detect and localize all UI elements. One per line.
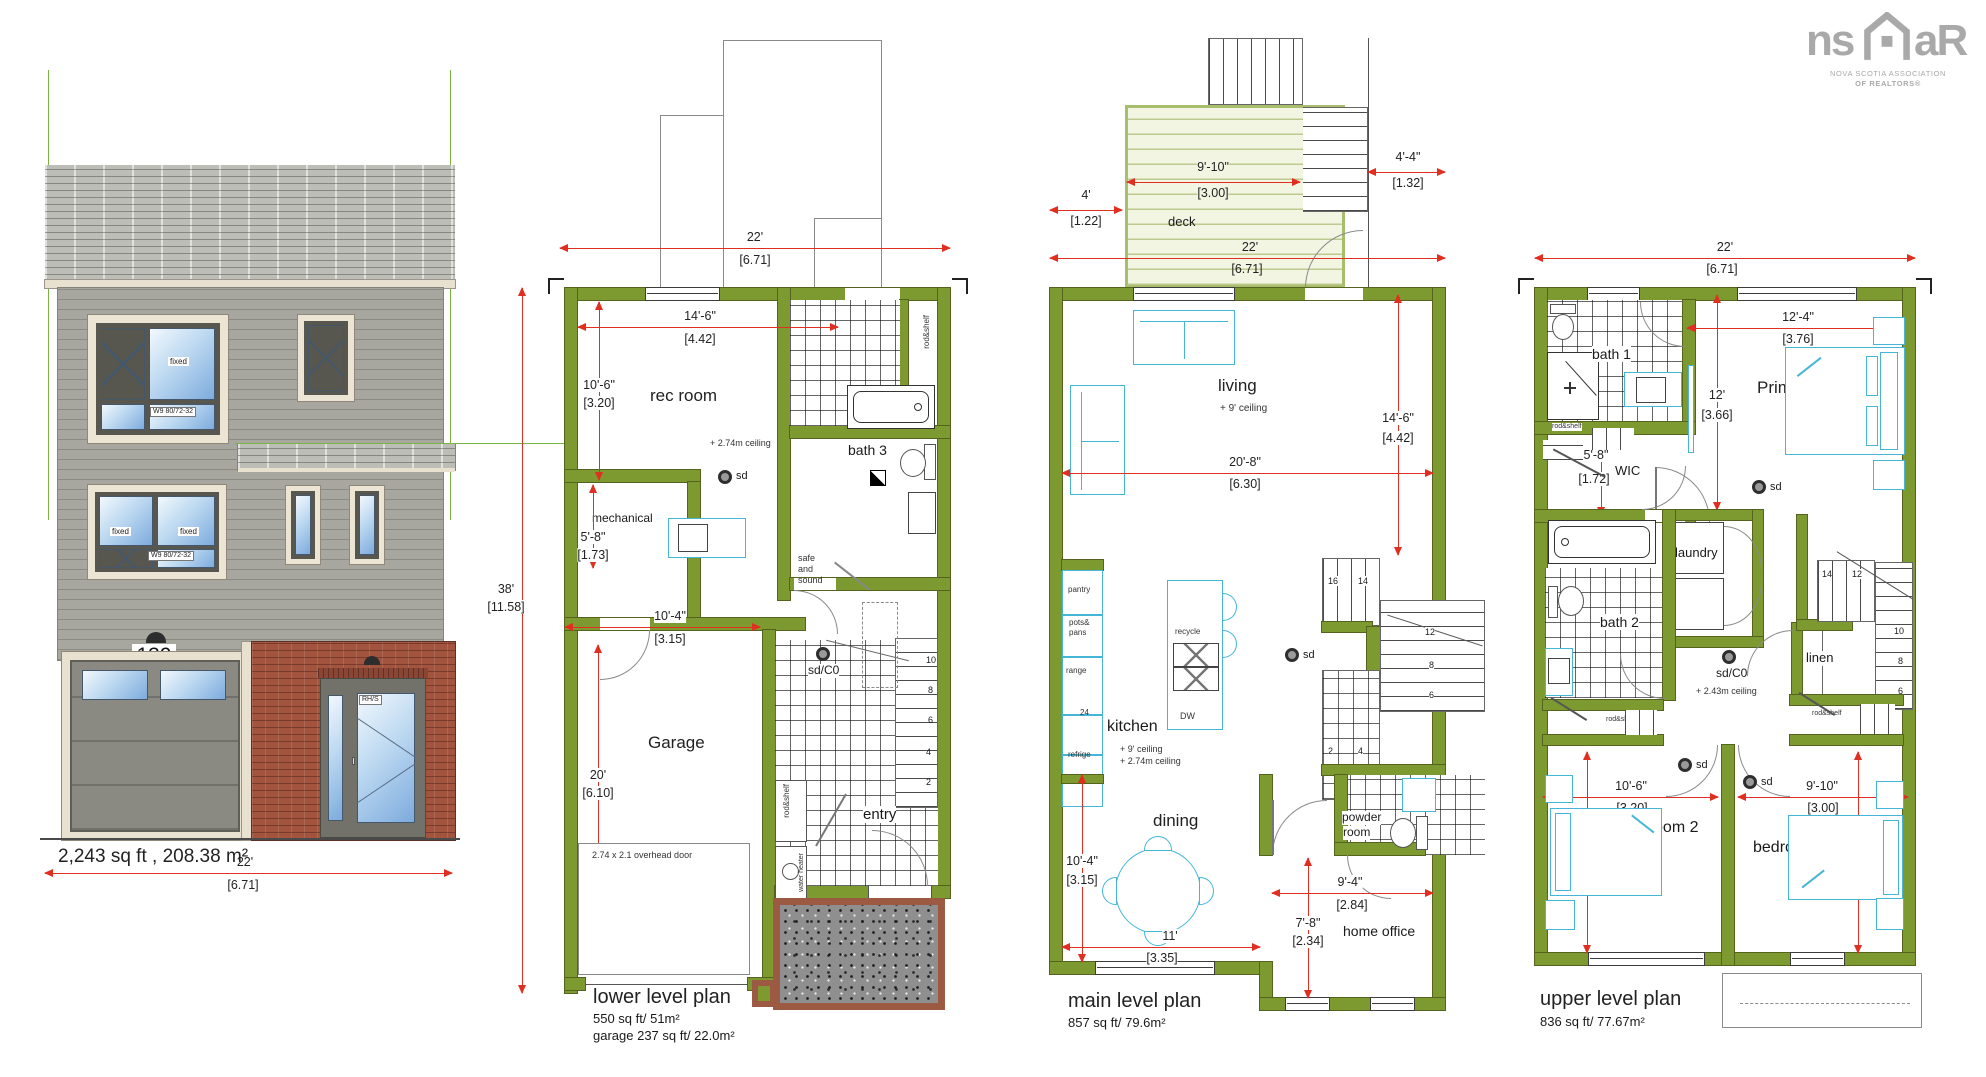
dimension-feet: 11' [1162,929,1177,943]
plan-area-2: garage 237 sq ft/ 22.0m² [593,1029,735,1044]
stool [1223,593,1237,621]
dimension-feet: 5'-8" [581,530,606,544]
window-symbol [1688,365,1694,453]
window-label: fixed [168,357,189,366]
dimension-feet: 4' [1081,188,1090,202]
dimension-line [565,627,760,628]
wall [1322,622,1372,632]
nightstand [1545,775,1573,803]
nightstand [1876,781,1904,809]
corner-tick [952,278,968,294]
toilet-bowl [1390,818,1416,848]
window-symbol [1370,997,1415,1011]
wall [1792,623,1802,703]
stair-number: 10 [1894,626,1904,636]
dimension-feet: 9'-10" [1806,779,1838,793]
stair-number: 12 [1425,627,1435,637]
headboard [1555,813,1571,891]
door-swing [600,630,650,680]
wall [938,288,950,898]
door-swing [1738,745,1790,797]
plan-area-1: 550 sq ft/ 51m² [593,1012,680,1027]
vanity-sink [908,492,936,534]
pillow [1866,356,1878,396]
closet-rods [1543,440,1583,460]
trim-post [242,642,252,840]
window-symbol [1790,952,1845,966]
cabinet-label-refrige: refrige [1068,750,1091,759]
dimension-feet: 22' [1242,240,1258,254]
sofa-divider [1081,441,1119,442]
wall [1797,515,1807,623]
dimension-feet: 10'-6" [583,378,615,392]
rod-shelf-label: rod&shelf [1552,423,1582,431]
window-pane [157,496,215,546]
dimension-meters: [3.76] [1782,332,1813,346]
plan-area-1: 857 sq ft/ 79.6m² [1068,1016,1166,1031]
door-sidelight [328,695,343,821]
toilet-tank [1550,304,1576,314]
dining-chair [1102,877,1117,905]
dimension-line [1272,893,1433,894]
smoke-detector-icon [816,647,830,661]
window-pane [101,404,145,430]
toilet-bowl [900,449,926,477]
wall [1668,637,1763,647]
room-label-office: home office [1343,923,1415,939]
garage-window [160,670,226,700]
bed-primary [1785,347,1905,455]
dimension-meters: [3.66] [1701,408,1732,422]
room-label-living: living [1218,376,1257,396]
wall [565,978,585,990]
ceiling-note: + 9' ceiling [1220,403,1267,415]
ceiling-note: + 9' ceiling [1120,744,1163,754]
room-label-kitchen: kitchen [1107,718,1158,736]
dimension-feet: 9'-4" [1338,875,1363,889]
door-leaf [1272,800,1274,855]
door-tag: RH/S [359,695,382,705]
stair-number: 6 [928,715,933,725]
wall [1753,510,1763,647]
toilet-bowl [1552,314,1574,340]
smoke-detector-label: sd [736,470,748,483]
door-swing [1272,800,1327,855]
kitchen-island: recycle DW [1167,580,1223,730]
corner-tick [548,278,564,294]
vanity-sink [1548,658,1570,684]
property-line [48,70,49,520]
smoke-detector-icon [1722,650,1736,664]
wall [1722,745,1734,965]
smoke-detector-icon [1678,758,1692,772]
nightstand [1876,898,1904,930]
rod-shelf-label: rod&shelf [782,784,791,818]
dimension-feet: 20'-8" [1229,455,1261,469]
dimension-meters: [4.42] [1382,431,1413,445]
stair-number: 8 [928,685,933,695]
ground-line [40,838,460,840]
cabinet-label-range: range [1066,666,1086,675]
door-header [318,668,428,678]
dimension-meters: [2.34] [1292,934,1323,948]
nightstand [1545,900,1575,930]
window-upper-left: fixed W9 80/72-32 [88,315,228,443]
cabinet-label-24: 24 [1080,708,1089,717]
window-pane [308,325,344,391]
dimension-meters: [2.84] [1336,898,1367,912]
wall [1050,288,1445,300]
grade-line [235,443,565,444]
nightstand [1873,317,1905,345]
dimension-meters: [6.71] [1706,262,1737,276]
window-pane [99,549,153,568]
dimension-meters: [6.71] [1231,262,1262,276]
cabinet-label-pans: pans [1069,628,1086,637]
wall [1050,288,1062,962]
bathtub [847,385,935,429]
stair-number: 16 [1328,576,1338,586]
smoke-detector-label: sd [1770,481,1782,494]
dimension-line [1535,258,1915,259]
room-label-wic: WIC [1615,464,1640,479]
overhead-door-outline [578,843,750,975]
cabinet-label-pots: pots& [1069,618,1089,627]
room-label-powder-2: room [1343,826,1370,840]
water-heater-label: water heater [798,853,806,892]
tub-drain [914,403,922,411]
dimension-meters: [1.32] [1392,176,1423,190]
window-symbol [1285,997,1330,1011]
dimension-meters: [3.15] [654,632,685,646]
plan-title: main level plan [1068,990,1201,1013]
dimension-feet: 4'-4" [1396,150,1421,164]
logo-ns-text: ns [1806,16,1853,67]
wall [1322,765,1445,775]
brick-post [752,980,776,1007]
stair-number: 14 [1358,576,1368,586]
wall [1790,735,1903,745]
dimension-meters: [6.71] [227,878,258,892]
window-symbol [1133,287,1235,301]
dimension-feet: 22' [237,855,253,869]
roof-outline [1722,973,1922,1028]
smoke-detector-label: sd [1696,759,1708,772]
bed-bedroom2 [1550,808,1662,896]
dimension-feet: 5'-8" [1584,448,1609,462]
elevation-area-text: 2,243 sq ft , 208.38 m² [58,846,248,868]
window-main-narrow [350,486,384,564]
logo-tagline-2: OF REALTORS® [1800,80,1976,89]
room-label-deck: deck [1168,215,1195,230]
smoke-detector-icon [1743,775,1757,789]
dining-chair [1144,836,1172,851]
door-swing [1666,745,1718,797]
logo-tagline-1: NOVA SCOTIA ASSOCIATION [1800,70,1976,79]
window-pane [99,496,153,546]
water-heater-closet: water heater [775,846,807,904]
dimension-line [1050,258,1445,259]
door-glass [357,693,415,823]
dimension-feet: 7'-8" [1296,916,1321,930]
island-sink [1173,643,1219,667]
pillow [1866,406,1878,446]
roof [45,165,455,282]
cabinet [1062,715,1103,755]
dimension-meters: [1.22] [1070,214,1101,228]
dimension-feet: 22' [1717,240,1733,254]
smoke-detector-icon [1285,648,1299,662]
window-pane [101,328,145,400]
toilet-bowl [1558,586,1584,616]
dimension-meters: [3.20] [583,396,614,410]
dryer [1672,578,1724,630]
closet-rods [1592,428,1634,450]
wall [1062,560,1103,570]
nsar-logo: ns aR NOVA SCOTIA ASSOCIATION OF REALTOR… [1800,14,1976,94]
dining-table [1115,848,1201,934]
island-label-dw: DW [1180,711,1195,721]
dimension-line [45,873,452,874]
door-opening [845,288,900,300]
ceiling-note: + 2.74m ceiling [1120,756,1181,766]
smoke-detector-icon [718,470,732,484]
dimension-meters: [1.73] [577,548,608,562]
corner-shower [1547,352,1599,420]
wall [565,470,700,482]
window-label: fixed [178,527,199,536]
landing-dashed-outline [862,602,898,688]
dimension-meters: [3.00] [1807,801,1838,815]
stair-number: 10 [926,655,936,665]
sheet-fold [1632,815,1655,833]
roof-outline-dashed [1740,1003,1910,1004]
window-pane [295,495,311,555]
toilet-tank [1548,586,1558,618]
wall [778,288,790,600]
corner-tick [1916,278,1932,294]
dimension-line [1050,210,1122,211]
stool [1223,630,1237,658]
door-opening [600,618,650,630]
stair-number: 8 [1898,656,1903,666]
garage-opening-line [585,984,748,985]
dimension-line [1717,295,1718,510]
dimension-line [1082,775,1083,962]
closet-rods [1625,710,1657,735]
cabinet-label-pantry: pantry [1068,585,1090,594]
sheet-fold [1802,870,1825,888]
island-sink [1173,667,1219,691]
dimension-meters: [3.35] [1146,951,1177,965]
smoke-detector-icon [1752,480,1766,494]
wall [1260,775,1272,855]
window-tag: W9 80/72-32 [148,551,194,561]
wall [1668,510,1763,520]
dimension-feet: 38' [498,582,514,596]
window-symbol [1587,287,1640,301]
front-elevation: fixed W9 80/72-32 fixed fixed W9 80/72-3… [40,10,460,910]
deck-rail [1368,38,1369,288]
door-handle [352,757,355,765]
dimension-meters: [3.00] [1197,186,1228,200]
nightstand [1873,460,1905,490]
dimension-line [1062,947,1260,948]
fascia [45,280,455,288]
note-and: and [798,564,813,574]
dimension-meters: [11.58] [487,600,524,614]
entry-door: RH/S [320,678,426,838]
rod-shelf-label: rod&shelf [922,315,931,349]
mid-roof-fascia [238,468,455,472]
window-main-left: fixed fixed W9 80/72-32 [88,485,226,579]
smoke-co-label: sd/C0 [1716,667,1747,681]
dimension-meters: [4.42] [684,332,715,346]
stair-number: 2 [926,777,931,787]
stair-number: 6 [1429,690,1434,700]
sofa [1133,310,1235,365]
room-label-bath2: bath 2 [1600,614,1639,630]
dining-chair [1199,877,1214,905]
island-label-recycle: recycle [1175,627,1200,636]
corner-tick [1518,278,1534,294]
architectural-drawing-sheet: ns aR NOVA SCOTIA ASSOCIATION OF REALTOR… [0,0,1986,1077]
room-label-entry: entry [863,806,896,823]
headboard [1883,820,1899,895]
dimension-feet: 14'-6" [1382,411,1414,425]
house-icon [1862,12,1912,62]
stair-number: 14 [1822,569,1832,579]
vanity-sink [1402,778,1436,812]
dimension-feet: 10'-6" [1615,779,1647,793]
smoke-co-label: sd/C0 [808,664,839,678]
closet-rods [1860,704,1895,734]
shower-symbol [870,470,886,486]
dimension-line [522,288,523,993]
dimension-meters: [3.15] [1066,873,1097,887]
room-label-rec: rec room [650,386,717,406]
dimension-feet: 12' [1709,388,1725,402]
headboard [1880,352,1898,450]
upper-level-plan: 22' [6.71] bath 1 12'-4" [3.76] Primary [1530,230,1930,1070]
bathtub [1548,520,1656,564]
logo-ar-text: aR [1914,16,1966,67]
water-heater-tank [782,863,799,880]
dimension-line [560,248,950,249]
window-symbol [1737,287,1857,301]
laundry-sink [678,524,708,552]
ceiling-note: + 2.74m ceiling [710,438,771,448]
stair-number: 4 [1358,746,1363,756]
room-label-bath1: bath 1 [1592,346,1631,362]
plan-area-1: 836 sq ft/ 77.67m² [1540,1015,1645,1030]
window-tag: W9 80/72-32 [150,407,196,417]
shower-cross [1569,382,1571,394]
stair-number: 4 [926,747,931,757]
vanity-sink [1636,377,1666,403]
dimension-line [1127,182,1300,183]
dimension-meters: [1.72] [1578,472,1609,486]
window-upper-right [298,315,354,401]
dimension-feet: 14'-6" [684,309,716,323]
stair-number: 12 [1852,569,1862,579]
smoke-detector-label: sd [1761,776,1773,789]
bed-bedroom3 [1788,815,1903,900]
room-label-powder-1: powder [1342,811,1381,825]
note-safe: safe [798,553,815,563]
ceiling-note: + 2.43m ceiling [1696,686,1757,696]
driveway-gravel [773,898,945,1010]
deck-stairs [1208,38,1303,105]
plan-title: upper level plan [1540,988,1681,1011]
door-opening [1305,288,1363,300]
dimension-feet: 9'-10" [1197,160,1229,174]
smoke-detector-label: sd [1303,649,1315,662]
overhead-door-note: 2.74 x 2.1 overhead door [592,850,692,860]
toilet-tank [1416,816,1428,850]
lower-level-plan: 22' [6.71] 10 8 6 4 2 [530,230,975,1070]
dimension-line [1368,172,1445,173]
mid-roof-strip [238,444,455,470]
plan-title: lower level plan [593,986,731,1009]
garage-door [62,652,248,840]
tub-drain [1561,538,1569,546]
sheet-fold [1797,357,1822,377]
dimension-feet: 12'-4" [1782,310,1814,324]
room-label-laundry: laundry [1675,546,1718,561]
stair-number: 8 [1429,660,1434,670]
wall [1543,735,1663,745]
dimension-meters: [6.10] [582,786,613,800]
entry-brick-wall: RH/S [252,642,455,840]
sofa [1070,385,1125,495]
wall [930,886,950,898]
room-label-garage: Garage [648,733,705,753]
deck-steps [1303,107,1368,212]
room-label-linen: linen [1806,651,1833,666]
dimension-line [1062,473,1433,474]
wall [565,288,577,993]
window-symbol [645,287,720,301]
dimension-meters: [6.71] [739,253,770,267]
dimension-feet: 22' [747,230,763,244]
note-sound: sound [798,575,823,585]
dimension-line [578,327,838,328]
wall [1335,843,1425,855]
door-light-icon [364,656,380,665]
room-label-mechanical: mechanical [592,512,653,526]
window-symbol [1588,952,1705,966]
room-label-dining: dining [1153,811,1198,831]
main-level-plan: deck 9'-10" [3.00] 4'-4" [1.32] 4' [1.22… [1040,30,1465,1050]
window-main-narrow [286,486,320,564]
sofa-divider [1184,321,1185,359]
window-pane [359,495,375,555]
dimension-feet: 20' [590,768,606,782]
dimension-feet: 10'-4" [1066,854,1098,868]
dimension-meters: [6.30] [1229,477,1260,491]
window-label: fixed [110,527,131,536]
garage-window [82,670,148,700]
stair-number: 2 [1328,746,1333,756]
stair-treads [1322,558,1380,626]
dimension-feet: 10'-4" [654,609,686,623]
room-label-bath3: bath 3 [848,442,887,458]
